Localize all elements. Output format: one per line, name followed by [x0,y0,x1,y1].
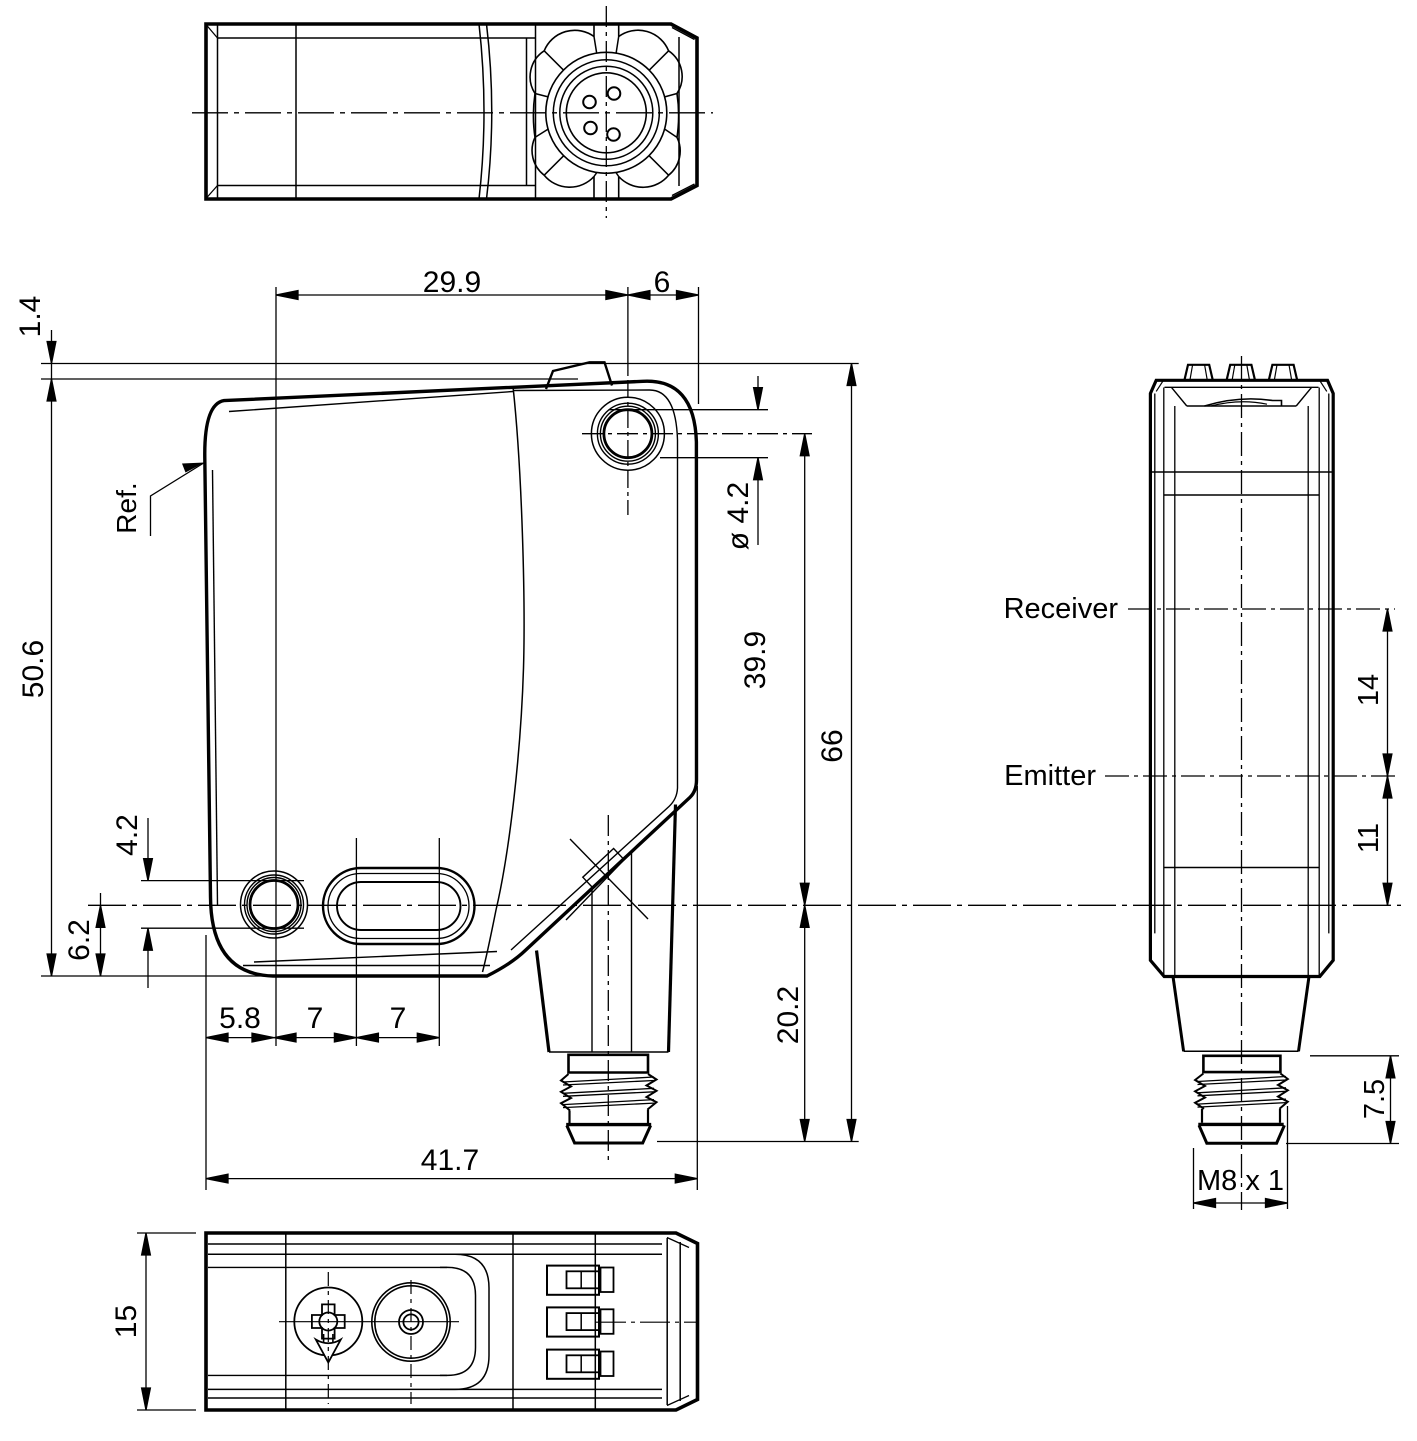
svg-text:6.2: 6.2 [63,919,96,961]
svg-text:ø 4.2: ø 4.2 [722,482,755,550]
svg-text:5.8: 5.8 [219,1002,261,1035]
svg-text:7: 7 [307,1002,324,1035]
svg-text:Receiver: Receiver [1004,593,1119,625]
svg-text:29.9: 29.9 [423,266,481,299]
svg-text:Ref.: Ref. [111,482,142,533]
svg-text:11: 11 [1353,823,1385,853]
svg-text:41.7: 41.7 [421,1144,479,1177]
svg-text:6: 6 [654,266,671,299]
svg-text:14: 14 [1353,674,1385,706]
svg-text:7: 7 [390,1002,407,1035]
svg-text:20.2: 20.2 [772,986,805,1044]
svg-text:1.4: 1.4 [14,296,47,338]
svg-text:M8 x 1: M8 x 1 [1197,1165,1284,1197]
svg-text:Emitter: Emitter [1004,760,1096,792]
svg-text:4.2: 4.2 [111,814,144,856]
svg-text:15: 15 [110,1305,143,1338]
svg-text:39.9: 39.9 [739,631,772,689]
svg-text:66: 66 [816,729,849,762]
svg-text:50.6: 50.6 [17,640,50,698]
svg-text:7.5: 7.5 [1359,1079,1391,1119]
